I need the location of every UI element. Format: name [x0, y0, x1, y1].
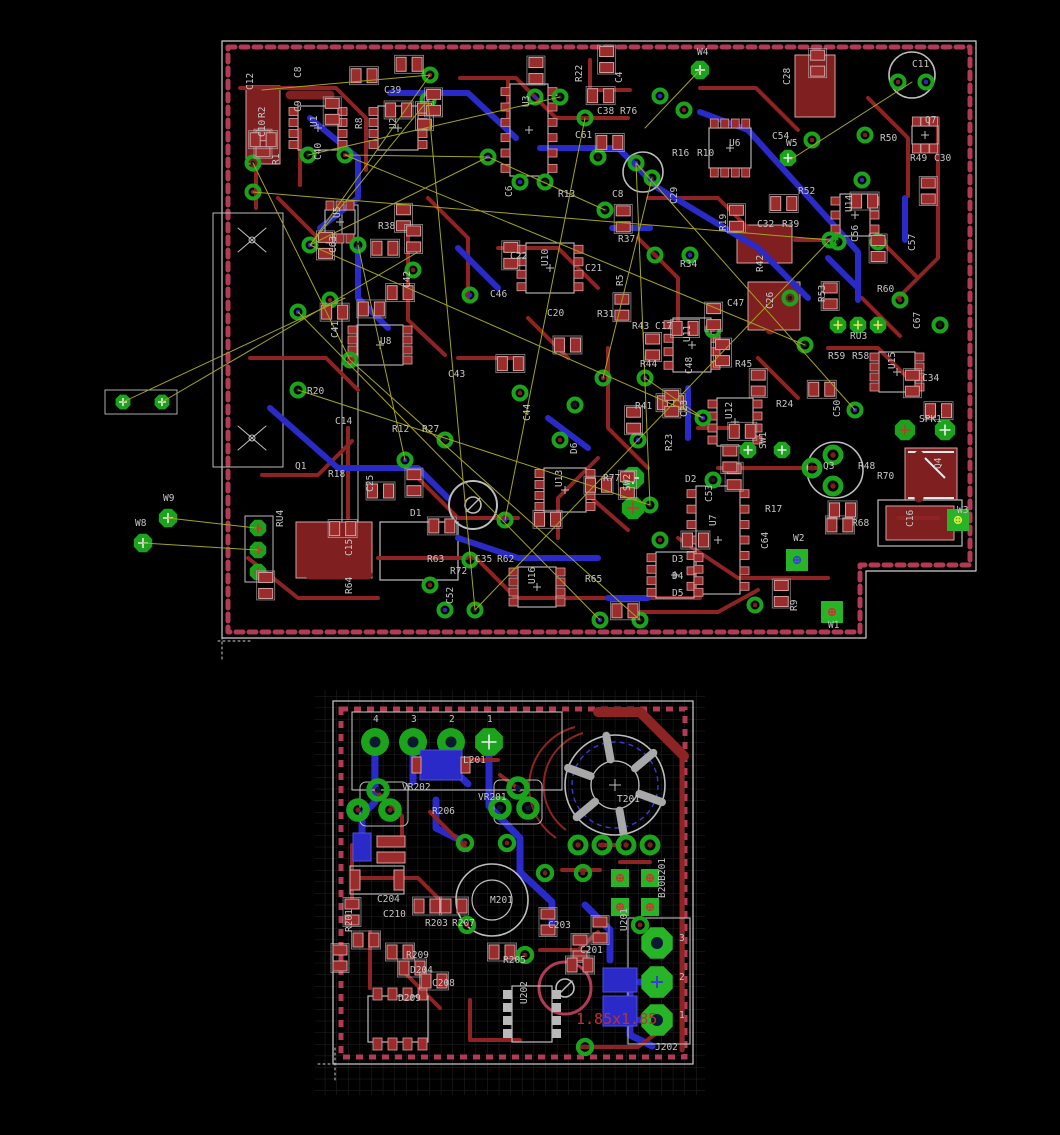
component-label: R39: [782, 219, 799, 230]
component-label: U12: [724, 402, 735, 419]
component-label: R68: [852, 518, 869, 529]
component-label: R53: [817, 285, 828, 302]
component-label: C12: [245, 73, 256, 90]
component-label: D2: [685, 474, 696, 485]
component-label: R41: [635, 401, 652, 412]
component-label: W3: [957, 505, 968, 516]
component-label: R72: [450, 566, 467, 577]
component-label: 3: [679, 933, 685, 944]
dimension-text: 1.85x1.85: [576, 1010, 657, 1028]
component-label: C20: [547, 308, 564, 319]
component-label: U16: [527, 567, 538, 584]
component-label: R50: [880, 133, 897, 144]
component-label: C204: [377, 894, 400, 905]
component-label: M201: [490, 895, 513, 906]
component-label: C26: [765, 292, 776, 309]
component-label: C44: [522, 404, 533, 421]
component-label: D204: [410, 965, 433, 976]
component-label: R27: [422, 424, 439, 435]
component-label: C35: [475, 554, 492, 565]
component-label: R2: [257, 107, 268, 118]
component-label: C48: [684, 357, 695, 374]
component-label: C42: [402, 271, 413, 288]
component-label: R206: [432, 806, 455, 817]
component-label: Q3: [823, 461, 834, 472]
component-label: T201: [617, 794, 640, 805]
component-label: R42: [755, 255, 766, 272]
component-label: R22: [574, 65, 585, 82]
component-label: C43: [448, 369, 465, 380]
component-label: C4: [614, 71, 625, 83]
component-label: C39: [384, 85, 401, 96]
component-label: R18: [328, 469, 345, 480]
component-label: R12: [392, 424, 409, 435]
component-label: R23: [664, 434, 675, 451]
component-label: U2: [388, 118, 399, 129]
component-label: Q1: [295, 461, 307, 472]
component-label: D1: [410, 508, 422, 519]
component-label: C210: [383, 909, 406, 920]
component-label: VR202: [402, 782, 431, 793]
component-label: R5: [615, 275, 626, 286]
component-label: R205: [503, 955, 526, 966]
component-label: J202: [655, 1042, 678, 1053]
component-label: VR201: [478, 792, 507, 803]
component-label: 3: [411, 714, 417, 725]
component-label: C50: [832, 400, 843, 417]
component-label: C64: [760, 532, 771, 549]
component-label: U202: [519, 981, 530, 1004]
component-label: C41: [330, 321, 341, 338]
component-label: R52: [798, 186, 815, 197]
component-label: C16: [905, 510, 916, 527]
component-label: C30: [934, 153, 951, 164]
component-label: U14: [844, 195, 855, 212]
component-label: C25: [365, 475, 376, 492]
component-label: C8: [612, 189, 624, 200]
component-label: R70: [877, 471, 894, 482]
component-label: R76: [620, 106, 637, 117]
component-label: C203: [548, 920, 571, 931]
component-label: R65: [585, 574, 602, 585]
component-label: C57: [907, 234, 918, 251]
component-label: C56: [850, 225, 861, 242]
component-label: R20: [307, 386, 324, 397]
component-label: R44: [640, 359, 657, 370]
component-label: W2: [793, 533, 804, 544]
component-label: R24: [776, 399, 793, 410]
component-label: C201: [580, 945, 603, 956]
component-label: R60: [877, 284, 894, 295]
component-label: U13: [554, 470, 565, 487]
component-label: 1: [487, 714, 493, 725]
component-label: C46: [490, 289, 507, 300]
component-label: R64: [344, 577, 355, 594]
component-label: C11: [912, 59, 929, 70]
component-label: U11: [682, 325, 693, 342]
component-label: D6: [569, 442, 580, 454]
component-label: U5: [332, 207, 343, 218]
component-label: C23: [679, 400, 690, 417]
component-label: C53: [704, 485, 715, 502]
component-label: R58: [852, 351, 869, 362]
component-label: C47: [727, 298, 744, 309]
component-label: U7: [708, 515, 719, 526]
component-label: W5: [786, 138, 797, 149]
component-label: C28: [782, 68, 793, 85]
component-label: R1: [271, 153, 282, 165]
component-label: C67: [912, 312, 923, 329]
component-label: C38: [597, 106, 614, 117]
component-label: R17: [765, 504, 782, 515]
component-label: W4: [697, 47, 709, 58]
component-label: R45: [735, 359, 752, 370]
component-label: R10: [697, 148, 714, 159]
component-label: W8: [135, 518, 147, 529]
component-label: C8: [293, 66, 304, 78]
component-label: B20B201: [657, 858, 668, 898]
component-label: D3: [672, 554, 683, 565]
component-label: U3: [521, 96, 532, 107]
component-label: U201: [619, 908, 630, 931]
component-label: R19: [718, 214, 729, 231]
component-label: Q7: [925, 115, 936, 126]
component-label: R34: [680, 259, 697, 270]
component-label: 2: [449, 714, 455, 725]
component-label: U1: [309, 115, 320, 127]
main-board: C12C8C9R2C10U1R1C40C39R8U2U3C61C38R76C4R…: [105, 41, 976, 662]
component-label: W9: [163, 493, 175, 504]
component-label: C15: [344, 539, 355, 556]
component-label: R13: [558, 189, 575, 200]
component-label: R37: [618, 234, 635, 245]
component-label: 2: [679, 972, 685, 983]
component-label: C61: [575, 130, 592, 141]
component-label: R62: [497, 554, 514, 565]
component-label: R31: [597, 309, 614, 320]
component-label: C22: [510, 251, 527, 262]
component-label: R63: [427, 554, 444, 565]
component-label: SPK1: [919, 414, 942, 425]
component-label: C17: [655, 321, 672, 332]
component-label: R203: [425, 918, 448, 929]
component-label: C32: [757, 219, 774, 230]
inductor-body: [420, 750, 462, 780]
component-label: C29: [669, 187, 680, 204]
component-label: C21: [585, 263, 602, 274]
component-label: R49: [910, 153, 927, 164]
component-label: 4: [373, 714, 379, 725]
component-label: C40: [313, 143, 324, 160]
component-label: C10: [257, 120, 268, 137]
component-label: W1: [828, 620, 840, 631]
connector-outline: [213, 213, 283, 467]
component-label: SW2: [622, 474, 633, 491]
component-label: Q4: [933, 457, 944, 469]
component-label: SW1: [758, 432, 769, 449]
component-label: D4: [672, 571, 684, 582]
component-label: R8: [354, 117, 365, 129]
component-label: R77: [603, 473, 620, 484]
component-label: R48: [858, 461, 875, 472]
component-label: L201: [463, 755, 486, 766]
power-board: 4321L201VR202VR201R206T201C204C210M201R2…: [315, 690, 705, 1095]
component-label: U15: [887, 352, 898, 369]
component-label: C6: [504, 185, 515, 197]
component-label: C208: [432, 978, 455, 989]
component-label: D209: [398, 993, 421, 1004]
component-label: R9: [789, 599, 800, 611]
component-label: U10: [540, 249, 551, 266]
component-label: R38: [378, 221, 395, 232]
component-label: 1: [679, 1010, 685, 1021]
component-label: C9: [293, 100, 304, 112]
pcb-drawing: C12C8C9R2C10U1R1C40C39R8U2U3C61C38R76C4R…: [0, 0, 1060, 1135]
copper-pour: [905, 448, 957, 500]
component-label: U6: [729, 138, 741, 149]
component-label: R207: [452, 918, 475, 929]
component-label: C14: [335, 416, 352, 427]
component-label: C63: [328, 236, 339, 253]
component-label: C34: [922, 373, 939, 384]
component-label: D5: [672, 588, 683, 599]
pcb-editor-canvas[interactable]: C12C8C9R2C10U1R1C40C39R8U2U3C61C38R76C4R…: [0, 0, 1060, 1135]
component-label: R43: [632, 321, 649, 332]
component-label: RU4: [275, 510, 286, 527]
component-label: R209: [406, 950, 429, 961]
component-label: C52: [445, 587, 456, 604]
component-label: RU3: [850, 331, 867, 342]
component-label: R16: [672, 148, 689, 159]
component-label: R59: [828, 351, 845, 362]
component-label: U8: [380, 336, 392, 347]
component-label: R201: [344, 909, 355, 932]
